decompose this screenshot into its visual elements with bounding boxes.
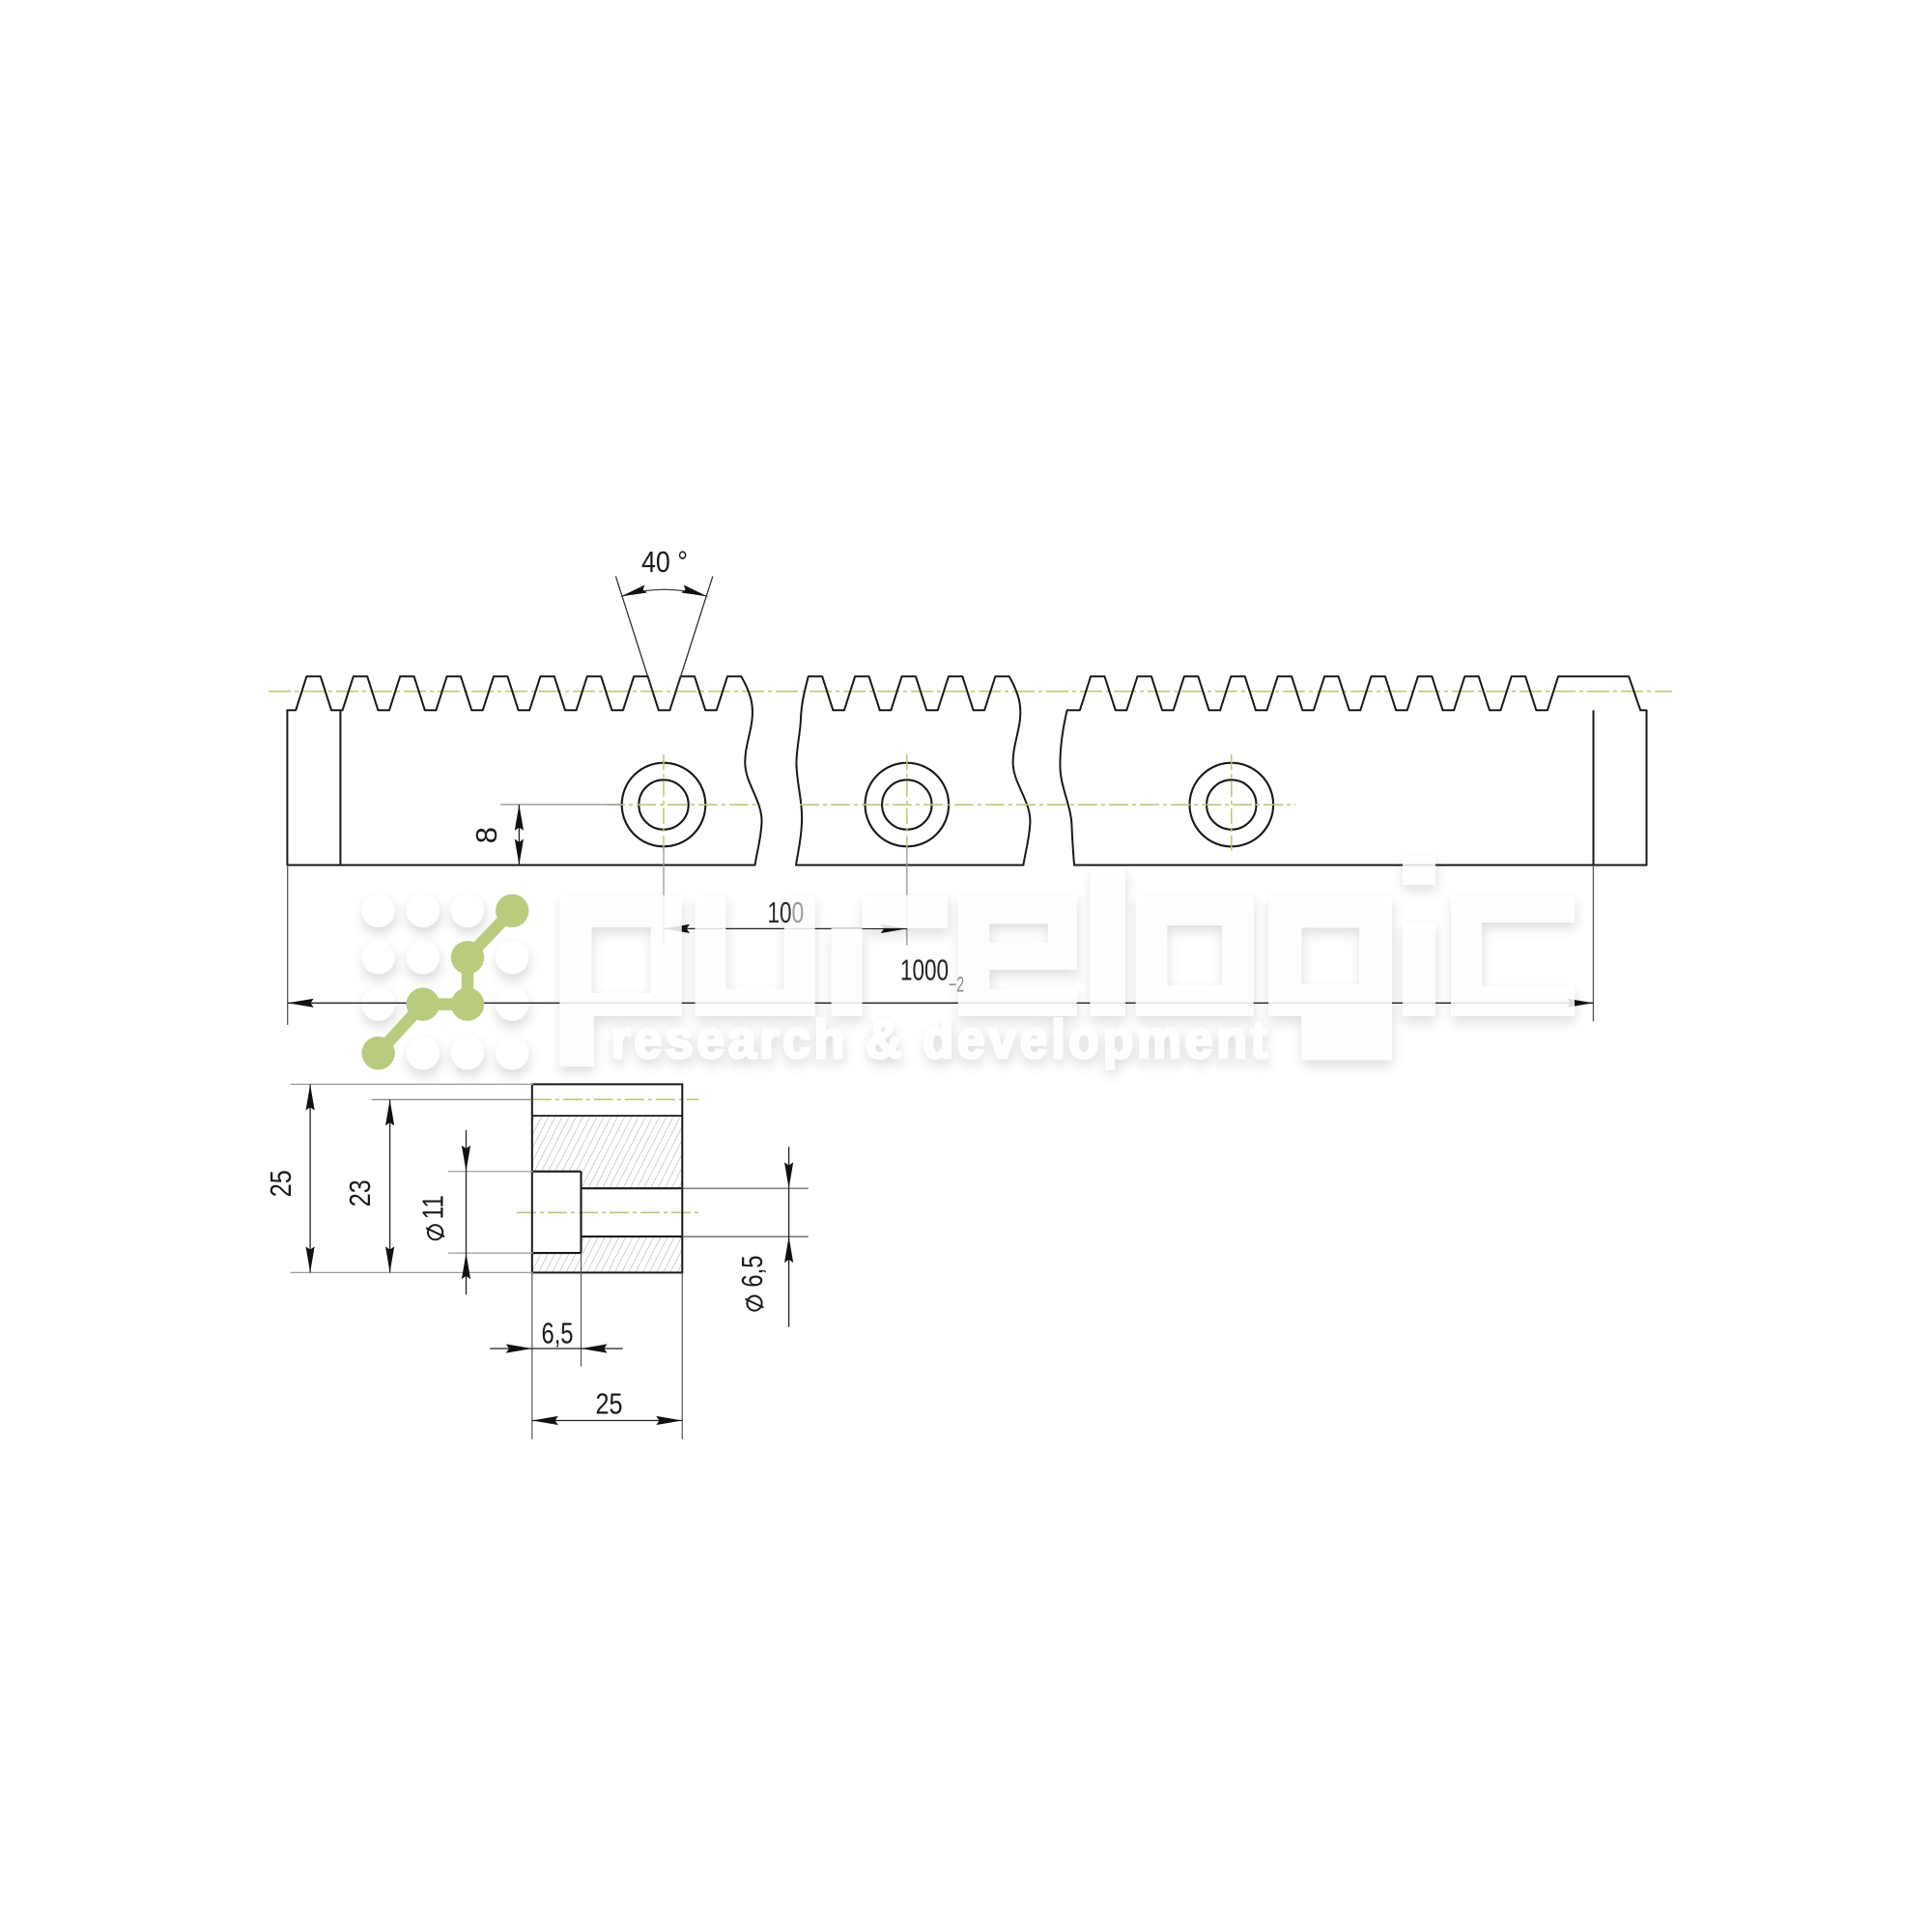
svg-text:25: 25 bbox=[264, 1170, 298, 1197]
svg-text:23: 23 bbox=[343, 1179, 377, 1207]
svg-text:40 °: 40 ° bbox=[641, 545, 688, 579]
svg-text:6,5: 6,5 bbox=[542, 1317, 574, 1350]
svg-text:10: 10 bbox=[768, 895, 792, 929]
svg-text:11: 11 bbox=[416, 1195, 450, 1219]
svg-text:1000: 1000 bbox=[900, 953, 949, 987]
svg-text:8: 8 bbox=[469, 827, 503, 843]
svg-text:0: 0 bbox=[792, 895, 805, 929]
svg-text:research & development: research & development bbox=[611, 1009, 1271, 1069]
svg-text:6,5: 6,5 bbox=[735, 1256, 769, 1288]
svg-text:−2: −2 bbox=[949, 973, 964, 997]
svg-text:25: 25 bbox=[596, 1387, 623, 1421]
